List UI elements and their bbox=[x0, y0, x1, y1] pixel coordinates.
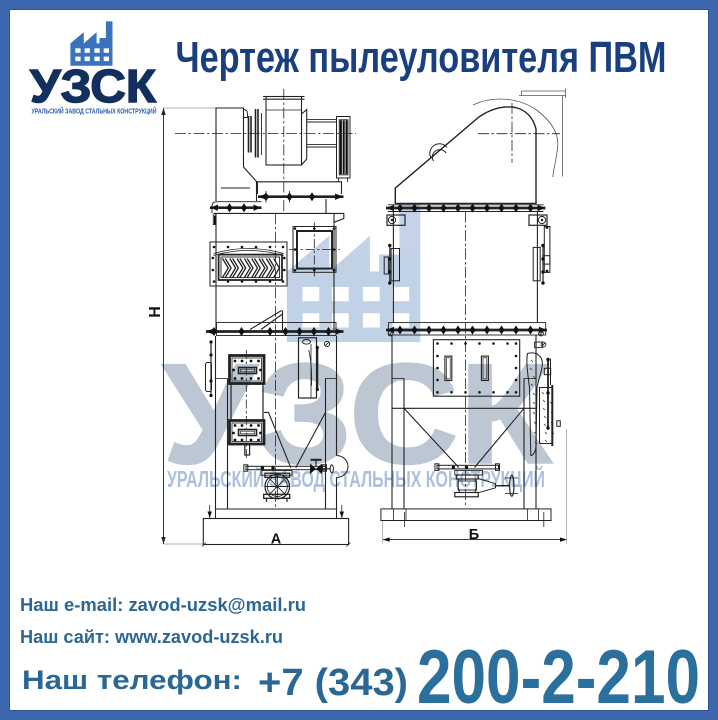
svg-text:УЗСК: УЗСК bbox=[30, 60, 157, 112]
svg-text:Наш телефон:: Наш телефон: bbox=[22, 665, 242, 695]
svg-text:+7 (343): +7 (343) bbox=[258, 662, 408, 704]
svg-text:Наш e-mail: zavod-uzsk@mail.ru: Наш e-mail: zavod-uzsk@mail.ru bbox=[20, 595, 306, 615]
svg-text:Чертеж пылеуловителя ПВМ: Чертеж пылеуловителя ПВМ bbox=[176, 33, 667, 82]
svg-text:Б: Б bbox=[469, 527, 479, 543]
svg-text:200-2-210: 200-2-210 bbox=[417, 635, 700, 720]
svg-text:УРАЛЬСКИЙ ЗАВОД СТАЛЬНЫХ КОНСТ: УРАЛЬСКИЙ ЗАВОД СТАЛЬНЫХ КОНСТРУКЦИЙ bbox=[32, 107, 157, 116]
svg-text:А: А bbox=[271, 532, 282, 548]
svg-text:Н: Н bbox=[147, 306, 164, 318]
svg-text:Наш сайт: www.zavod-uzsk.ru: Наш сайт: www.zavod-uzsk.ru bbox=[20, 627, 283, 647]
